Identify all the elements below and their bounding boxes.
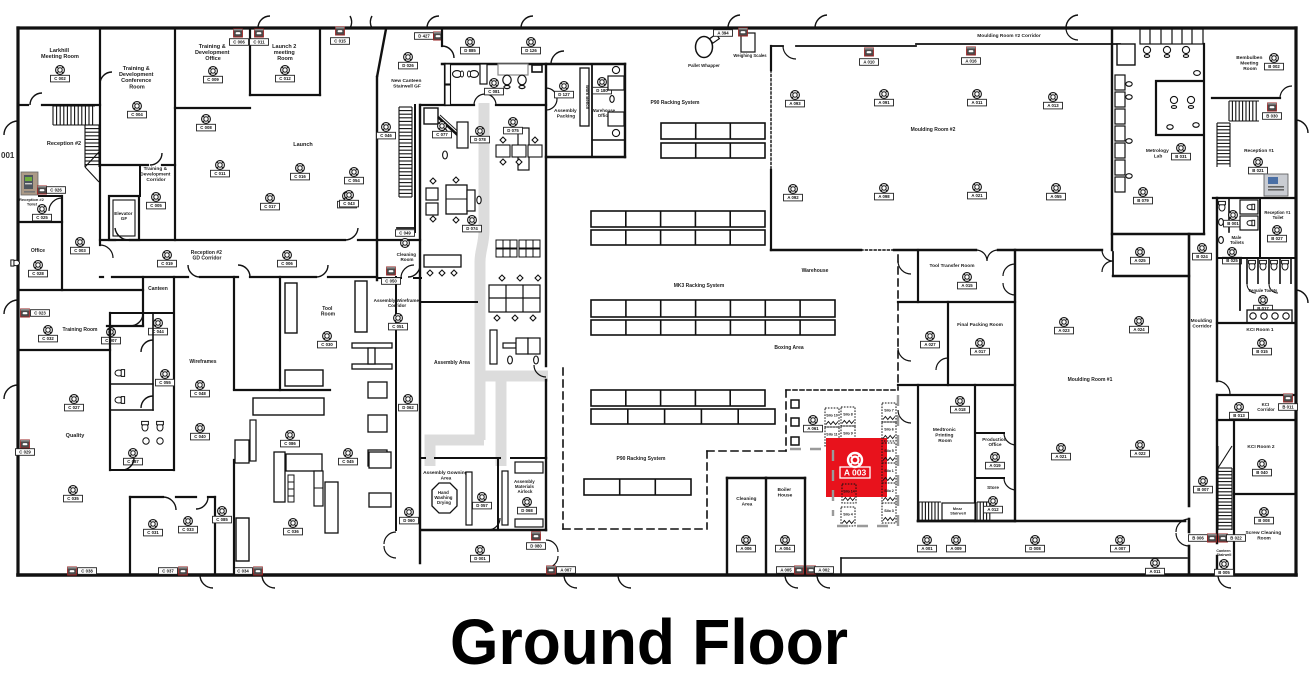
svg-text:D 078: D 078 [474, 137, 486, 142]
svg-text:D 180: D 180 [596, 88, 608, 93]
svg-text:A 006: A 006 [740, 546, 752, 551]
svg-text:Silo 5: Silo 5 [884, 449, 894, 453]
svg-text:Boiler House: Boiler House [778, 487, 793, 498]
svg-text:Weighing Scales: Weighing Scales [733, 53, 767, 58]
svg-text:P90 Racking System: P90 Racking System [651, 100, 700, 106]
svg-text:B 013: B 013 [1233, 413, 1245, 418]
svg-text:A 004: A 004 [779, 546, 791, 551]
svg-text:KCI Room 1: KCI Room 1 [1246, 327, 1274, 333]
svg-text:A 093: A 093 [789, 101, 801, 106]
svg-text:C 004: C 004 [131, 112, 143, 117]
svg-text:A 024: A 024 [1133, 327, 1145, 332]
svg-text:C 037: C 037 [162, 569, 174, 574]
svg-text:Warehouse: Warehouse [802, 268, 829, 274]
svg-text:D 074: D 074 [466, 226, 478, 231]
svg-text:D 126: D 126 [525, 48, 537, 53]
svg-text:A 091: A 091 [878, 100, 890, 105]
svg-text:A 021: A 021 [971, 193, 983, 198]
svg-text:A 027: A 027 [924, 342, 936, 347]
svg-text:C 028: C 028 [32, 271, 44, 276]
svg-text:C 055: C 055 [159, 380, 171, 385]
svg-text:A 007: A 007 [1114, 546, 1126, 551]
svg-text:Boxing Area: Boxing Area [774, 345, 803, 351]
svg-text:A 023: A 023 [1058, 328, 1070, 333]
svg-text:Store: Store [987, 485, 999, 490]
svg-text:Silo 4: Silo 4 [843, 513, 853, 517]
svg-text:A 005: A 005 [780, 568, 792, 573]
svg-text:C 030: C 030 [321, 342, 333, 347]
svg-text:B 040: B 040 [1256, 470, 1268, 475]
svg-text:C 044: C 044 [152, 329, 164, 334]
svg-text:B 006: B 006 [1192, 536, 1204, 541]
svg-text:C 031: C 031 [147, 530, 159, 535]
svg-text:C 038: C 038 [81, 569, 93, 574]
svg-text:B 079: B 079 [1137, 198, 1149, 203]
svg-text:B 021: B 021 [1252, 168, 1264, 173]
svg-text:B 031: B 031 [1175, 154, 1187, 159]
svg-text:B 022: B 022 [1230, 536, 1242, 541]
svg-text:Female Toilets: Female Toilets [1249, 288, 1278, 293]
svg-text:C 046: C 046 [380, 133, 392, 138]
svg-text:C 026: C 026 [50, 188, 62, 193]
svg-text:D 026: D 026 [402, 63, 414, 68]
svg-text:Moulding Room #2: Moulding Room #2 [911, 127, 956, 133]
svg-text:D 060: D 060 [403, 518, 415, 523]
svg-text:D 068: D 068 [521, 508, 533, 513]
svg-text:C 025: C 025 [36, 215, 48, 220]
svg-text:Office: Office [31, 248, 45, 254]
svg-text:Wireframes: Wireframes [189, 359, 216, 365]
svg-text:A 017: A 017 [974, 349, 986, 354]
svg-text:D 062: D 062 [402, 405, 414, 410]
svg-text:D 075: D 075 [507, 128, 519, 133]
svg-text:Moulding Room #1: Moulding Room #1 [1068, 377, 1113, 383]
svg-text:A 001: A 001 [921, 546, 933, 551]
svg-text:A 007: A 007 [560, 568, 572, 573]
svg-text:B 002: B 002 [1268, 64, 1280, 69]
svg-text:D 080: D 080 [530, 544, 542, 549]
svg-text:Tool Transfer Room: Tool Transfer Room [930, 263, 975, 269]
svg-text:C 086: C 086 [284, 441, 296, 446]
svg-text:A 010: A 010 [863, 60, 875, 65]
svg-text:C 011: C 011 [253, 40, 265, 45]
svg-text:Moulding Room #2 Corridor: Moulding Room #2 Corridor [977, 33, 1041, 39]
svg-text:P90 Racking System: P90 Racking System [617, 456, 666, 462]
svg-text:Silo 10: Silo 10 [826, 414, 838, 418]
svg-text:A 011: A 011 [1149, 569, 1161, 574]
svg-text:C 048: C 048 [194, 391, 206, 396]
svg-text:Assembly Packing: Assembly Packing [554, 108, 578, 119]
svg-text:A 061: A 061 [807, 426, 819, 431]
svg-text:A 003: A 003 [844, 468, 867, 478]
svg-text:A 394: A 394 [717, 31, 729, 36]
svg-text:A 015: A 015 [961, 283, 973, 288]
svg-text:C 017: C 017 [264, 204, 276, 209]
svg-text:Launch: Launch [293, 142, 313, 148]
svg-text:C 035: C 035 [67, 496, 79, 501]
svg-text:B 008: B 008 [1258, 518, 1270, 523]
svg-text:C 007: C 007 [105, 338, 117, 343]
svg-text:Silo 14: Silo 14 [843, 490, 855, 494]
svg-text:A 002: A 002 [818, 568, 830, 573]
svg-text:C 027: C 027 [68, 405, 80, 410]
svg-text:A 021: A 021 [1055, 454, 1067, 459]
svg-text:Reception #2: Reception #2 [47, 141, 81, 147]
svg-text:Canteen: Canteen [148, 286, 168, 292]
svg-text:A 013: A 013 [1047, 103, 1059, 108]
svg-text:B 027: B 027 [1271, 236, 1283, 241]
svg-text:B 030: B 030 [1266, 114, 1278, 119]
svg-text:Silo 3: Silo 3 [884, 509, 894, 513]
svg-text:A 098: A 098 [878, 194, 890, 199]
svg-text:Male Toilets: Male Toilets [1230, 235, 1244, 245]
svg-text:C 003: C 003 [74, 248, 86, 253]
svg-text:D 427: D 427 [418, 34, 430, 39]
svg-text:Quality: Quality [66, 433, 86, 439]
svg-text:C 005: C 005 [150, 203, 162, 208]
svg-text:Silo 9: Silo 9 [843, 432, 853, 436]
svg-text:A 025: A 025 [1134, 258, 1146, 263]
svg-text:D 057: D 057 [476, 503, 488, 508]
svg-text:A 016: A 016 [965, 59, 977, 64]
svg-text:C 043: C 043 [343, 201, 355, 206]
svg-text:Final Packing Room: Final Packing Room [957, 322, 1003, 328]
svg-text:C 036: C 036 [287, 529, 299, 534]
svg-text:Ground Floor: Ground Floor [450, 606, 848, 678]
svg-text:A 022: A 022 [1134, 451, 1146, 456]
svg-text:C 029: C 029 [19, 450, 31, 455]
svg-text:D 001: D 001 [474, 556, 486, 561]
svg-text:C 081: C 081 [488, 89, 500, 94]
svg-text:C 040: C 040 [194, 434, 206, 439]
svg-text:B 005: B 005 [1218, 570, 1230, 575]
svg-text:Tool Room: Tool Room [321, 306, 336, 318]
svg-text:C 006: C 006 [281, 261, 293, 266]
svg-text:A 019: A 019 [989, 463, 1001, 468]
svg-text:C 023: C 023 [34, 311, 46, 316]
svg-text:Moulding Corridor: Moulding Corridor [1191, 318, 1214, 329]
svg-text:B 024: B 024 [1196, 254, 1208, 259]
svg-text:Silo 6: Silo 6 [884, 428, 894, 432]
svg-text:C 008: C 008 [200, 125, 212, 130]
svg-text:C 051: C 051 [392, 324, 404, 329]
svg-text:C 012: C 012 [279, 76, 291, 81]
svg-text:A 055: A 055 [1050, 194, 1062, 199]
svg-text:C 015: C 015 [334, 39, 346, 44]
svg-text:Training Room: Training Room [63, 327, 99, 333]
svg-text:B 001: B 001 [1227, 221, 1239, 226]
svg-text:C 033: C 033 [182, 527, 194, 532]
svg-text:C 011: C 011 [214, 171, 226, 176]
svg-text:C 009: C 009 [207, 77, 219, 82]
svg-text:Silo 7: Silo 7 [884, 409, 894, 413]
svg-text:A 011: A 011 [971, 100, 983, 105]
svg-text:A 018: A 018 [954, 407, 966, 412]
svg-text:C 054: C 054 [348, 178, 360, 183]
svg-text:B 007: B 007 [1197, 487, 1209, 492]
svg-text:Canteen Stairwell: Canteen Stairwell [1216, 549, 1231, 557]
svg-text:Assembly Area: Assembly Area [434, 360, 470, 366]
svg-text:B 015: B 015 [1256, 349, 1268, 354]
svg-text:Silo 1: Silo 1 [884, 469, 894, 473]
svg-text:C 085: C 085 [216, 517, 228, 522]
svg-text:C 045: C 045 [342, 459, 354, 464]
svg-text:A 092: A 092 [787, 195, 799, 200]
svg-text:Reception #2 GD Corridor: Reception #2 GD Corridor [191, 250, 224, 262]
svg-text:Silo 11: Silo 11 [826, 433, 837, 437]
svg-text:A 009: A 009 [950, 546, 962, 551]
svg-text:KCI Room 2: KCI Room 2 [1247, 444, 1275, 450]
svg-text:C 049: C 049 [399, 231, 411, 236]
svg-text:MK3 Racking System: MK3 Racking System [674, 283, 725, 289]
svg-text:C 002: C 002 [54, 76, 66, 81]
svg-text:D 127: D 127 [558, 92, 570, 97]
svg-text:C 034: C 034 [237, 569, 249, 574]
svg-text:C 050: C 050 [385, 279, 397, 284]
svg-text:Pallet Whapper: Pallet Whapper [688, 63, 720, 68]
svg-text:001: 001 [1, 151, 15, 160]
svg-text:Work Bench: Work Bench [585, 85, 590, 110]
svg-text:D 008: D 008 [1029, 546, 1041, 551]
svg-text:D 885: D 885 [464, 48, 476, 53]
svg-text:C 016: C 016 [294, 174, 306, 179]
svg-text:B 011: B 011 [1282, 405, 1294, 410]
svg-text:Silo 8: Silo 8 [843, 413, 853, 417]
svg-text:A 012: A 012 [987, 507, 999, 512]
svg-text:C 077: C 077 [436, 132, 448, 137]
svg-text:Reception #1: Reception #1 [1244, 148, 1274, 154]
svg-text:Silo 2: Silo 2 [884, 489, 894, 493]
svg-text:New Canteen Stairwell GF: New Canteen Stairwell GF [391, 78, 422, 89]
svg-text:C 006: C 006 [233, 40, 245, 45]
svg-text:C 019: C 019 [161, 261, 173, 266]
svg-text:C 032: C 032 [42, 336, 54, 341]
